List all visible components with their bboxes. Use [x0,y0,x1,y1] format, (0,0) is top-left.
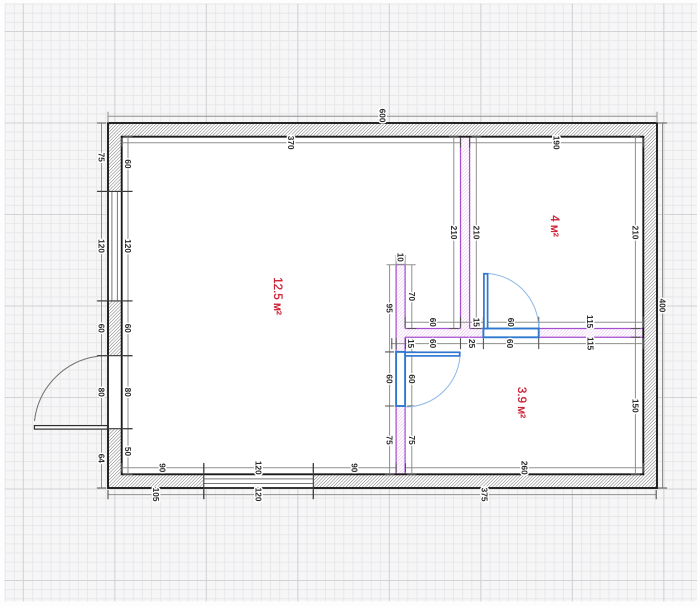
svg-text:80: 80 [123,388,133,398]
svg-text:120: 120 [254,488,264,502]
svg-text:600: 600 [378,109,388,123]
svg-text:60: 60 [385,374,395,384]
svg-text:210: 210 [630,226,640,240]
svg-text:50: 50 [123,447,133,457]
svg-text:25: 25 [467,339,477,349]
svg-text:60: 60 [407,374,417,384]
svg-text:375: 375 [479,488,489,502]
svg-text:115: 115 [586,337,596,351]
svg-text:120: 120 [97,239,107,253]
svg-text:95: 95 [385,304,395,314]
svg-text:80: 80 [97,388,107,398]
svg-text:60: 60 [506,318,516,328]
svg-text:400: 400 [658,299,668,313]
svg-text:60: 60 [505,339,515,349]
svg-text:370: 370 [286,136,296,150]
svg-text:120: 120 [254,461,264,475]
svg-text:260: 260 [519,461,529,475]
svg-text:150: 150 [630,399,640,413]
svg-text:210: 210 [471,226,481,240]
svg-text:3.9 м²: 3.9 м² [515,387,528,418]
svg-text:60: 60 [97,324,107,334]
svg-text:190: 190 [551,136,561,150]
svg-text:90: 90 [158,463,168,473]
svg-text:70: 70 [407,292,417,302]
svg-text:60: 60 [428,339,438,349]
svg-text:10: 10 [395,253,405,263]
svg-text:75: 75 [385,435,395,445]
svg-text:60: 60 [123,324,133,334]
svg-text:90: 90 [350,463,360,473]
svg-text:210: 210 [449,226,459,240]
svg-text:64: 64 [97,454,107,464]
svg-text:4 м²: 4 м² [548,215,561,237]
svg-text:15: 15 [472,318,482,328]
svg-text:115: 115 [585,315,595,329]
svg-text:12.5 м²: 12.5 м² [271,277,284,315]
svg-text:60: 60 [123,159,133,169]
svg-text:120: 120 [123,239,133,253]
svg-text:15: 15 [406,339,416,349]
svg-text:105: 105 [151,488,161,502]
svg-text:75: 75 [97,153,107,163]
svg-text:60: 60 [428,318,438,328]
svg-text:75: 75 [407,435,417,445]
